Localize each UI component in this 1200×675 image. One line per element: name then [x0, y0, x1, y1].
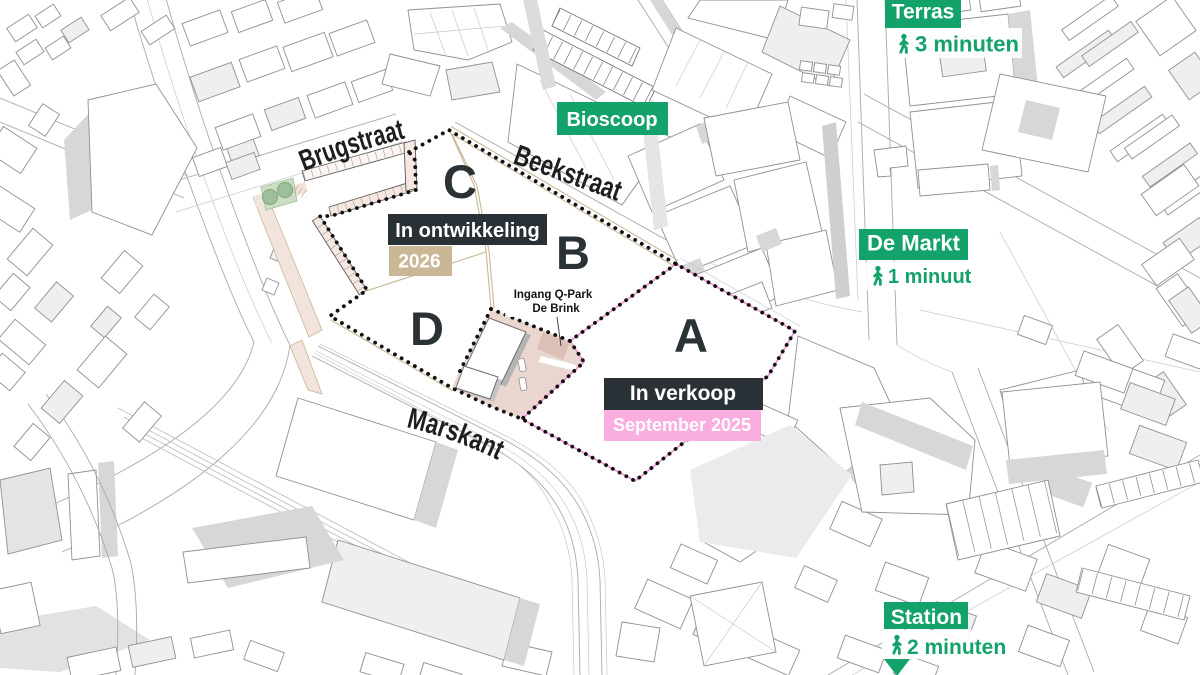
- svg-text:C: C: [443, 155, 477, 208]
- svg-text:In verkoop: In verkoop: [630, 382, 736, 405]
- svg-text:Bioscoop: Bioscoop: [566, 109, 657, 131]
- svg-text:De Markt: De Markt: [867, 231, 961, 256]
- svg-text:Ingang Q-Park: Ingang Q-Park: [514, 289, 593, 301]
- svg-text:2026: 2026: [398, 252, 440, 273]
- svg-text:3 minuten: 3 minuten: [915, 32, 1019, 57]
- svg-text:1 minuut: 1 minuut: [888, 266, 972, 288]
- svg-text:D: D: [410, 302, 444, 355]
- svg-text:Terras: Terras: [892, 1, 955, 24]
- svg-text:2 minuten: 2 minuten: [907, 636, 1006, 659]
- svg-text:A: A: [674, 309, 708, 362]
- svg-text:De Brink: De Brink: [532, 303, 580, 315]
- svg-text:Station: Station: [891, 606, 962, 629]
- svg-text:September 2025: September 2025: [613, 415, 751, 435]
- svg-text:In ontwikkeling: In ontwikkeling: [395, 220, 539, 242]
- svg-text:B: B: [556, 226, 590, 279]
